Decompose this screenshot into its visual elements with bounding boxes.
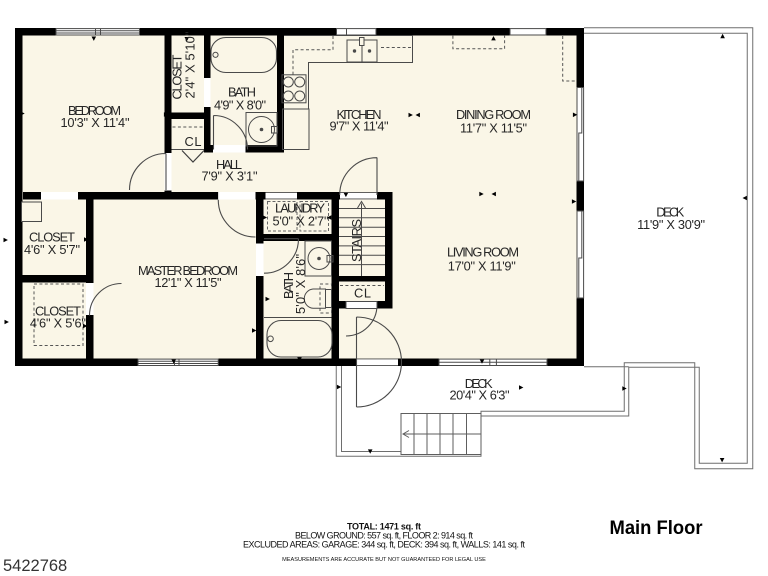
svg-text:2'4" X 5'10": 2'4" X 5'10" [183,32,198,99]
svg-text:11'7" X 11'5": 11'7" X 11'5" [460,121,527,136]
svg-text:CL: CL [185,134,202,149]
svg-text:11'9" X 30'9": 11'9" X 30'9" [637,217,705,232]
svg-text:4'6" X 5'7": 4'6" X 5'7" [24,242,80,257]
svg-text:7'9" X 3'1": 7'9" X 3'1" [202,169,258,184]
svg-text:17'0" X 11'9": 17'0" X 11'9" [448,259,516,274]
svg-text:STAIRS: STAIRS [349,219,364,262]
svg-text:CL: CL [354,286,371,301]
svg-text:10'3" X 11'4": 10'3" X 11'4" [61,115,130,130]
svg-text:4'6" X 5'6": 4'6" X 5'6" [30,316,86,331]
svg-text:4'9" X 8'0": 4'9" X 8'0" [214,98,266,113]
svg-text:5'0" X 2'7": 5'0" X 2'7" [273,214,329,229]
svg-text:EXCLUDED AREAS: GARAGE: 344 sq: EXCLUDED AREAS: GARAGE: 344 sq. ft, DECK… [243,540,525,550]
svg-text:Main Floor: Main Floor [610,517,703,539]
svg-text:5'0" X 8'6": 5'0" X 8'6" [293,254,308,314]
svg-text:9'7" X 11'4": 9'7" X 11'4" [330,119,389,134]
svg-text:MEASUREMENTS ARE ACCURATE BUT: MEASUREMENTS ARE ACCURATE BUT NOT GUARAN… [282,557,486,563]
svg-text:12'1" X 11'5": 12'1" X 11'5" [155,275,222,290]
svg-text:20'4" X 6'3": 20'4" X 6'3" [450,388,510,403]
svg-text:LIVING ROOM: LIVING ROOM [447,245,519,260]
svg-text:5422768: 5422768 [3,557,67,575]
